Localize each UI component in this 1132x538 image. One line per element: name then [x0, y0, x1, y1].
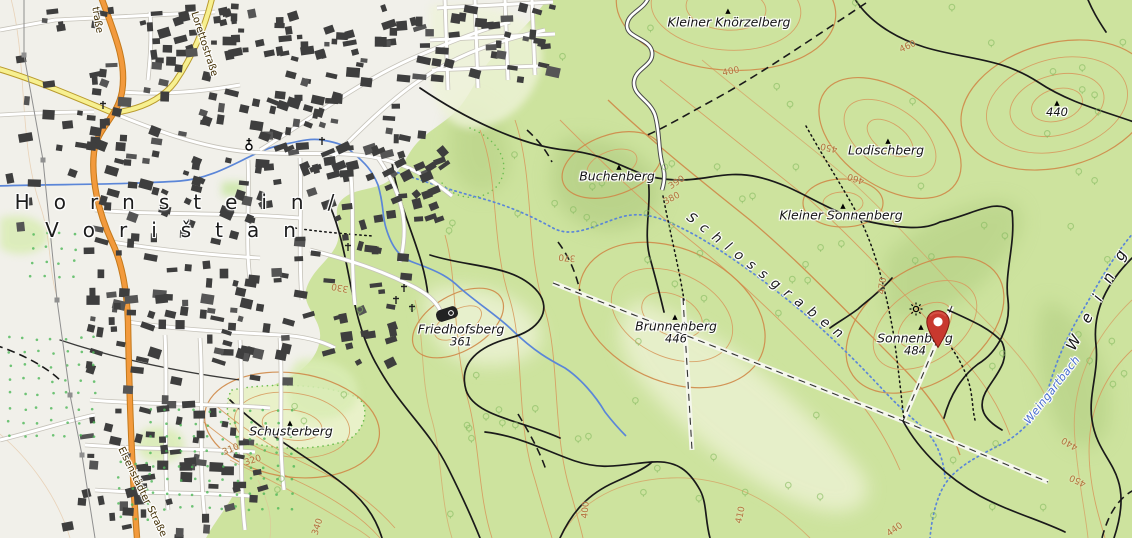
map-canvas[interactable] — [0, 0, 1132, 538]
map-marker-pin[interactable] — [924, 309, 952, 349]
map-viewport[interactable]: H o r n s t e i n /V o r i š t a nKleine… — [0, 0, 1132, 538]
